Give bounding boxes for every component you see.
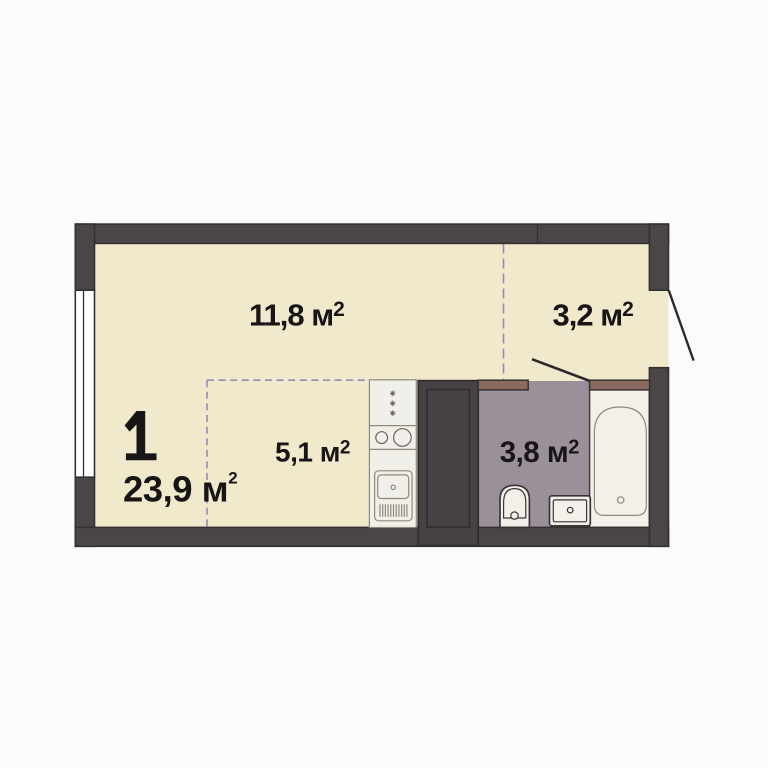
svg-text:23,9 м2: 23,9 м2 [123,468,237,509]
svg-text:3,8 м2: 3,8 м2 [500,436,580,469]
svg-text:11,8 м2: 11,8 м2 [249,297,344,332]
svg-text:5,1 м2: 5,1 м2 [275,436,350,467]
svg-text:3,2 м2: 3,2 м2 [553,297,634,332]
